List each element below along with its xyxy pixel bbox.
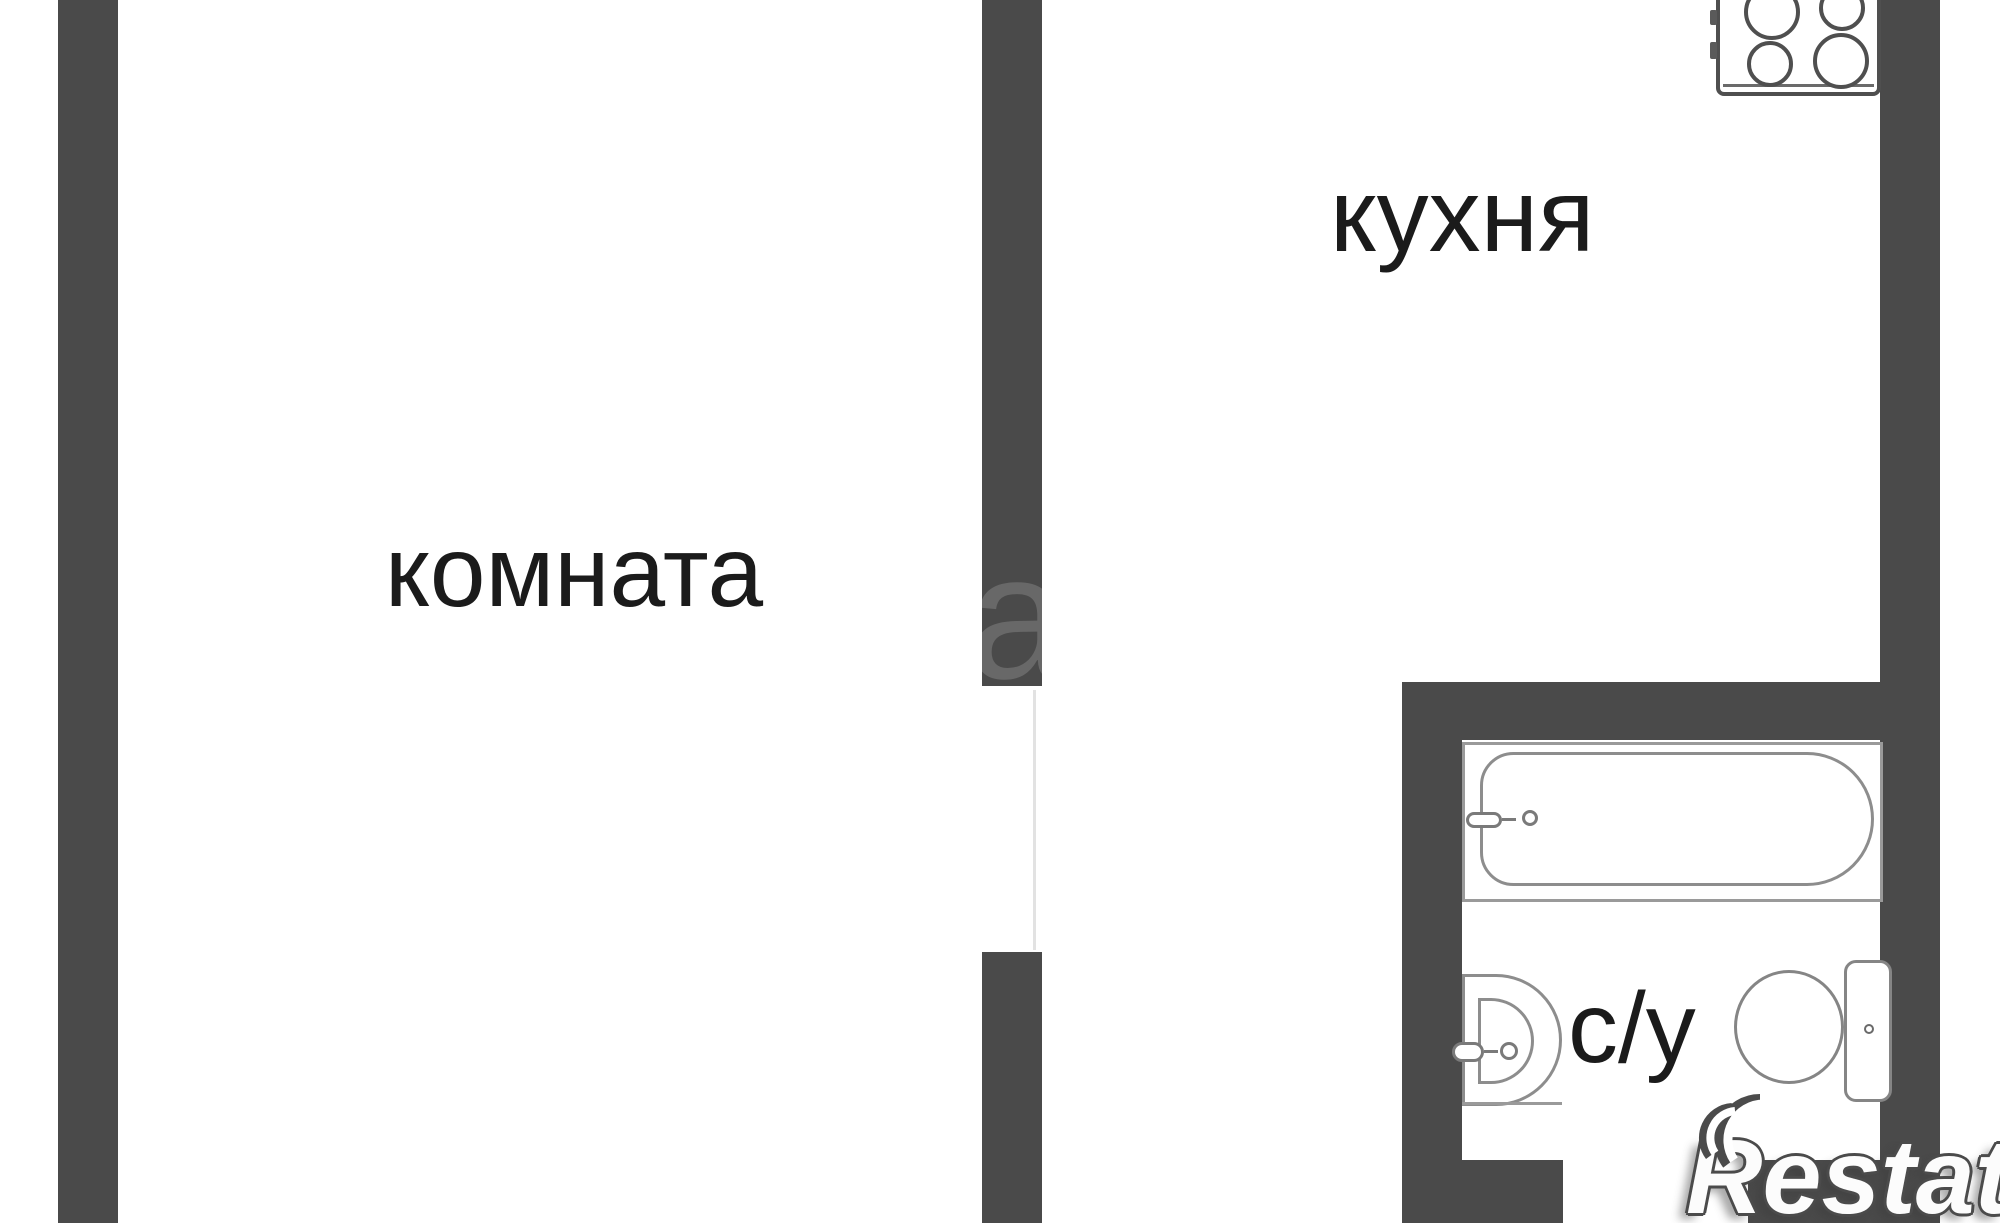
floor-plan: комната кухня с/у a Restate bbox=[0, 0, 2000, 1223]
bathtub-drain-icon bbox=[1522, 810, 1538, 826]
room-label: комната bbox=[385, 522, 763, 622]
toilet-icon bbox=[1734, 970, 1844, 1084]
bathtub-faucet-icon bbox=[1466, 812, 1502, 828]
sink-counter-edge bbox=[1462, 1102, 1562, 1105]
sink-faucet-icon bbox=[1484, 1050, 1498, 1053]
stove-knob-icon bbox=[1710, 10, 1717, 25]
wall-bathroom-top bbox=[1402, 682, 1880, 740]
sink-faucet-icon bbox=[1452, 1042, 1484, 1062]
bathtub-icon bbox=[1480, 752, 1874, 886]
stove-knob-icon bbox=[1710, 42, 1717, 59]
wall-bathroom-left bbox=[1402, 740, 1462, 1160]
bathroom-label: с/у bbox=[1568, 978, 1696, 1078]
watermark-swirl-icon bbox=[1698, 1094, 1808, 1174]
bathtub-faucet-icon bbox=[1502, 818, 1516, 821]
wall-left bbox=[58, 0, 118, 1223]
faint-watermark-letter: a bbox=[968, 528, 1067, 706]
toilet-flush-button-icon bbox=[1864, 1024, 1874, 1034]
stove-burner-icon bbox=[1813, 33, 1869, 89]
sink-faucet-icon bbox=[1500, 1042, 1518, 1060]
wall-bathroom-bottom-left bbox=[1402, 1160, 1563, 1223]
wall-middle-lower bbox=[982, 952, 1042, 1223]
kitchen-label: кухня bbox=[1330, 164, 1594, 268]
door-opening-line bbox=[1033, 690, 1036, 950]
stove-burner-icon bbox=[1747, 41, 1793, 87]
